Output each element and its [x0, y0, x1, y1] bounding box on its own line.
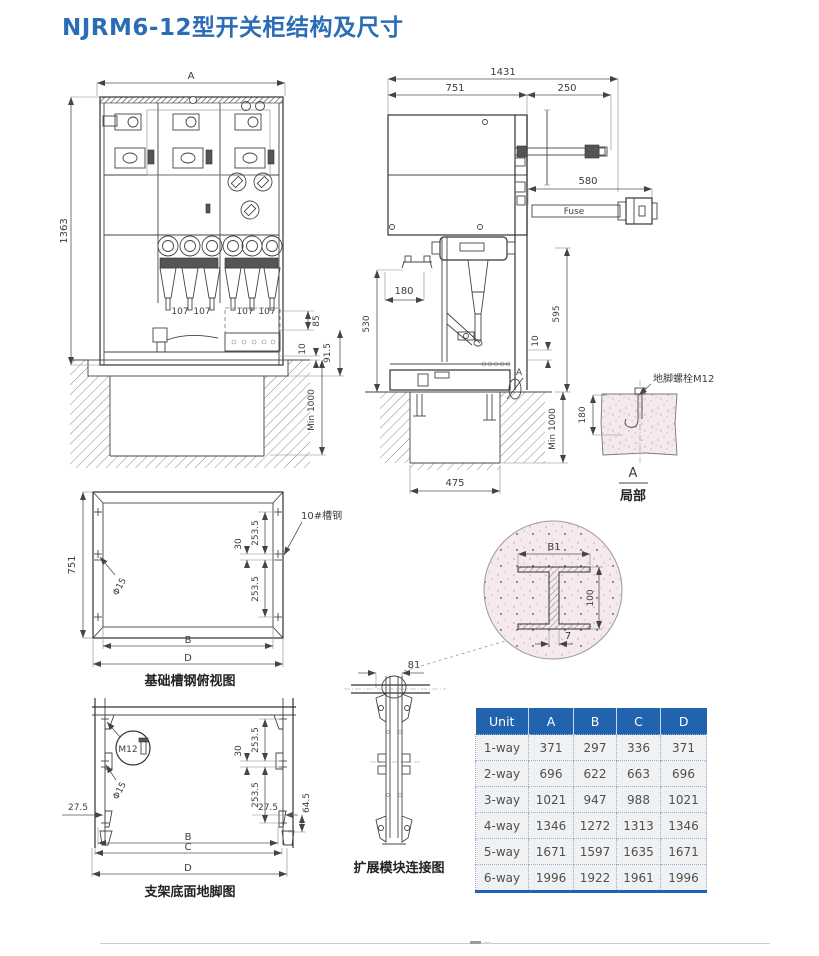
- side-dim-595: 595: [552, 248, 571, 392]
- cell-a: 1996: [529, 865, 574, 892]
- side-cabinet-profile: [388, 115, 527, 390]
- foundation-hole-callout: Φ15: [100, 557, 129, 598]
- module-assembly: [344, 676, 446, 844]
- beam-dim-100-label: 100: [586, 589, 596, 606]
- dim-91-5-label: 91.5: [323, 343, 333, 363]
- table-row: 5-way 1671 1597 1635 1671: [476, 839, 707, 865]
- col-header-d: D: [661, 708, 707, 735]
- cell-b: 1597: [574, 839, 617, 865]
- dim-645-label: 64.5: [302, 793, 312, 813]
- col-header-unit: Unit: [476, 708, 529, 735]
- cell-b: 297: [574, 735, 617, 761]
- foundation-dim-b-label: B: [185, 635, 192, 646]
- table-row: 2-way 696 622 663 696: [476, 761, 707, 787]
- dim-751-label: 751: [445, 83, 464, 94]
- cabinet-outline: [100, 97, 283, 366]
- foundation-dim-751-label: 751: [67, 555, 78, 574]
- table-row: 4-way 1346 1272 1313 1346: [476, 813, 707, 839]
- cell-b: 1272: [574, 813, 617, 839]
- spec-table: Unit A B C D 1-way 371 297 336 371 2-way…: [475, 708, 707, 893]
- cell-d: 1021: [661, 787, 707, 813]
- cell-unit: 1-way: [476, 735, 529, 761]
- cell-a: 1671: [529, 839, 574, 865]
- cell-unit: 3-way: [476, 787, 529, 813]
- cell-unit: 2-way: [476, 761, 529, 787]
- footer-mark-light: [484, 942, 491, 944]
- cell-d: 696: [661, 761, 707, 787]
- detail-caption: A 局部: [619, 466, 648, 504]
- anchor-bolt-label: 地脚螺栓M12: [653, 372, 714, 385]
- cell-b: 1922: [574, 865, 617, 892]
- channel-callout: 10#槽钢: [284, 509, 342, 555]
- dim-85-label: 85: [312, 315, 322, 326]
- table-row: 6-way 1996 1922 1961 1996: [476, 865, 707, 892]
- gauge-dials: [206, 173, 272, 219]
- bracket-dim-c-label: C: [185, 842, 192, 853]
- beam-dim-7-label: 7: [565, 631, 571, 642]
- cell-b: 947: [574, 787, 617, 813]
- base-frame: [390, 362, 510, 390]
- front-view-drawing: A 1363: [58, 70, 350, 475]
- dim-180-label: 180: [394, 286, 413, 297]
- front-dim-height: 1363: [59, 97, 100, 365]
- bracket-dim-253b-label: 253.5: [251, 782, 261, 808]
- side-dim-250: 250: [527, 83, 611, 150]
- m12-label: M12: [118, 745, 137, 755]
- bracket-dim-275-left: 27.5: [62, 803, 103, 815]
- module-caption: 扩展模块连接图: [353, 860, 444, 876]
- foundation-dim-253b: 253.5: [251, 560, 276, 617]
- footer-mark: [470, 941, 481, 944]
- bracket-dim-253a: 253.5: [240, 719, 281, 761]
- foundation-caption: 基础槽钢俯视图: [143, 673, 235, 689]
- bay-components: [103, 114, 274, 168]
- bracket-hole-callout: Φ15: [106, 765, 129, 802]
- foundation-dim-d-label: D: [184, 653, 192, 664]
- bracket-plan-drawing: M12 Φ15 27.5 27.5 64.5 253.5: [56, 693, 350, 908]
- cell-d: 371: [661, 735, 707, 761]
- table-row: 3-way 1021 947 988 1021: [476, 787, 707, 813]
- module-dim-81: 81: [358, 660, 424, 688]
- bracket-dim-30-label: 30: [234, 745, 244, 757]
- cell-c: 1635: [617, 839, 661, 865]
- side-dim-180: 180: [385, 272, 424, 300]
- cell-unit: 6-way: [476, 865, 529, 892]
- ground-hatch: [70, 360, 310, 468]
- bracket-dim-d-label: D: [184, 863, 192, 874]
- concrete-block: [601, 380, 677, 465]
- cell-unit: 4-way: [476, 813, 529, 839]
- cell-unit: 5-way: [476, 839, 529, 865]
- side-dim-10: 10: [527, 335, 552, 368]
- bracket-hole-label: Φ15: [111, 781, 129, 802]
- side-dim-1431: 1431: [388, 67, 618, 192]
- channel-label: 10#槽钢: [301, 509, 342, 522]
- col-header-c: C: [617, 708, 661, 735]
- foundation-dim-253a: 253.5: [240, 512, 276, 554]
- col-header-a: A: [529, 708, 574, 735]
- dim-1431-label: 1431: [490, 67, 515, 78]
- fuse-label: Fuse: [564, 207, 585, 217]
- cell-a: 371: [529, 735, 574, 761]
- module-dim-81-label: 81: [408, 660, 421, 671]
- col-header-b: B: [574, 708, 617, 735]
- cell-d: 1671: [661, 839, 707, 865]
- side-dim-10-label: 10: [531, 335, 541, 347]
- dim-580-label: 580: [578, 176, 597, 187]
- front-dim-85: 85: [280, 311, 322, 330]
- m12-callout: M12: [107, 722, 150, 765]
- dim-min1000-side-label: Min 1000: [548, 408, 558, 450]
- dim-275l-label: 27.5: [68, 803, 88, 813]
- dim-a-label: A: [188, 71, 195, 82]
- foundation-hole-label: Φ15: [111, 577, 129, 598]
- cell-a: 1021: [529, 787, 574, 813]
- front-dim-width: A: [97, 71, 285, 96]
- cell-c: 1961: [617, 865, 661, 892]
- bracket-dim-645: 64.5: [288, 793, 312, 832]
- table-header-row: Unit A B C D: [476, 708, 707, 735]
- dim-595-label: 595: [552, 305, 562, 322]
- cell-c: 1313: [617, 813, 661, 839]
- bracket-caption: 支架底面地脚图: [143, 884, 235, 900]
- foundation-dim-30-label: 30: [234, 538, 244, 550]
- section-marker-label: A: [516, 368, 523, 378]
- cone-label-3: 107: [236, 307, 253, 317]
- cell-a: 1346: [529, 813, 574, 839]
- foundation-plan-drawing: 751 253.5 30 253.5 Φ15 10#槽钢: [58, 483, 350, 698]
- beam-dim-b1-label: B1: [547, 542, 560, 553]
- cell-c: 663: [617, 761, 661, 787]
- detail-marker-label: A: [629, 466, 638, 481]
- channel-frame: [93, 492, 283, 638]
- foundation-dim-253a-label: 253.5: [251, 520, 261, 546]
- anchor-bolt-callout: 地脚螺栓M12: [639, 372, 714, 395]
- busbar-arm: [515, 110, 607, 185]
- table-row: 1-way 371 297 336 371: [476, 735, 707, 761]
- bracket-dim-253b: 253.5: [251, 767, 281, 823]
- cell-c: 336: [617, 735, 661, 761]
- footer-divider: [100, 943, 770, 944]
- cable-compartment: [104, 308, 280, 352]
- breaker-mechanism: [402, 237, 515, 362]
- foundation-dim-253b-label: 253.5: [251, 576, 261, 602]
- detail-dim-180-label: 180: [578, 406, 588, 423]
- side-ground: [365, 392, 552, 470]
- dim-530-label: 530: [362, 315, 372, 332]
- cell-a: 696: [529, 761, 574, 787]
- cell-b: 622: [574, 761, 617, 787]
- page-title: NJRM6-12型开关柜结构及尺寸: [62, 8, 403, 42]
- cone-label-2: 107: [193, 307, 210, 317]
- dim-10-label: 10: [298, 343, 308, 355]
- foundation-dim-751: 751: [67, 492, 93, 638]
- anchor-detail-drawing: 地脚螺栓M12 180 A 局部: [575, 355, 800, 510]
- detail-caption-label: 局部: [620, 488, 646, 504]
- cone-label-1: 107: [171, 307, 188, 317]
- bracket-dim-253a-label: 253.5: [251, 727, 261, 753]
- side-dim-751: 751: [388, 83, 527, 115]
- dim-250-label: 250: [557, 83, 576, 94]
- dim-475-label: 475: [445, 478, 464, 489]
- fuse-assembly: Fuse: [532, 198, 657, 224]
- cell-d: 1996: [661, 865, 707, 892]
- bracket-dim-C: C: [95, 842, 282, 855]
- dim-1363-label: 1363: [59, 218, 70, 243]
- cell-d: 1346: [661, 813, 707, 839]
- cone-label-4: 107: [258, 307, 275, 317]
- cell-c: 988: [617, 787, 661, 813]
- page: NJRM6-12型开关柜结构及尺寸 A 1363: [0, 0, 819, 956]
